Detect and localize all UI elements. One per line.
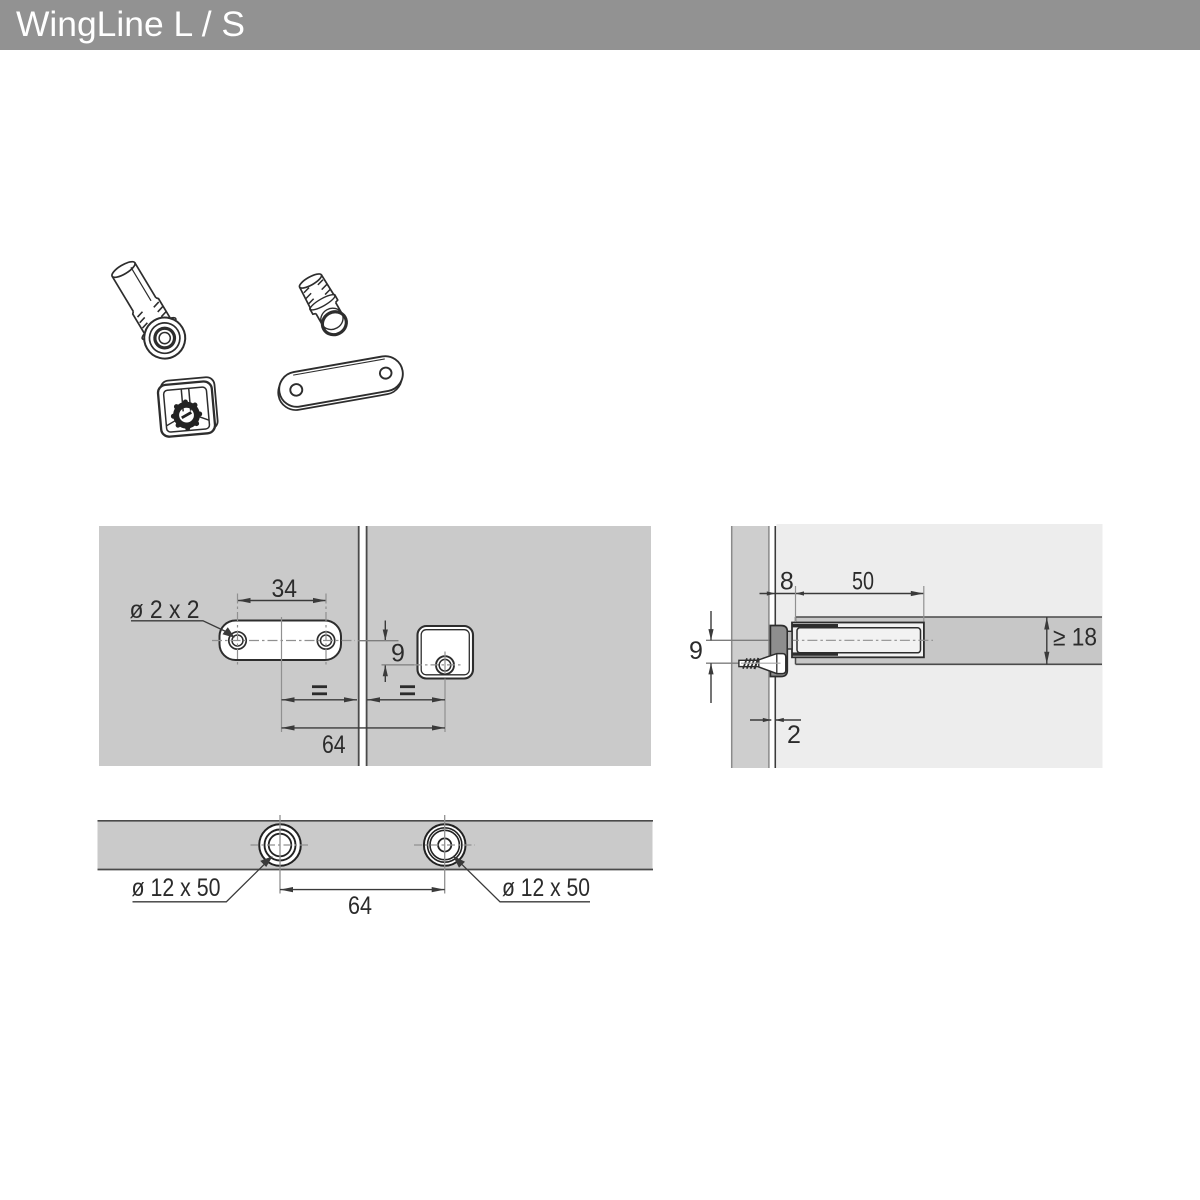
svg-text:ø 12 x 50: ø 12 x 50	[132, 874, 221, 902]
svg-text:64: 64	[348, 892, 372, 920]
svg-text:9: 9	[689, 637, 703, 665]
svg-text:9: 9	[391, 640, 405, 668]
svg-text:2: 2	[787, 721, 801, 749]
svg-text:34: 34	[272, 575, 298, 603]
svg-text:ø 2 x 2: ø 2 x 2	[130, 596, 200, 624]
svg-text:ø 12 x 50: ø 12 x 50	[502, 874, 590, 902]
svg-text:64: 64	[322, 731, 346, 759]
svg-text:WingLine L / S: WingLine L / S	[16, 5, 245, 44]
svg-text:≥ 18: ≥ 18	[1053, 624, 1097, 652]
svg-text:50: 50	[852, 568, 874, 596]
svg-text:8: 8	[780, 568, 794, 596]
